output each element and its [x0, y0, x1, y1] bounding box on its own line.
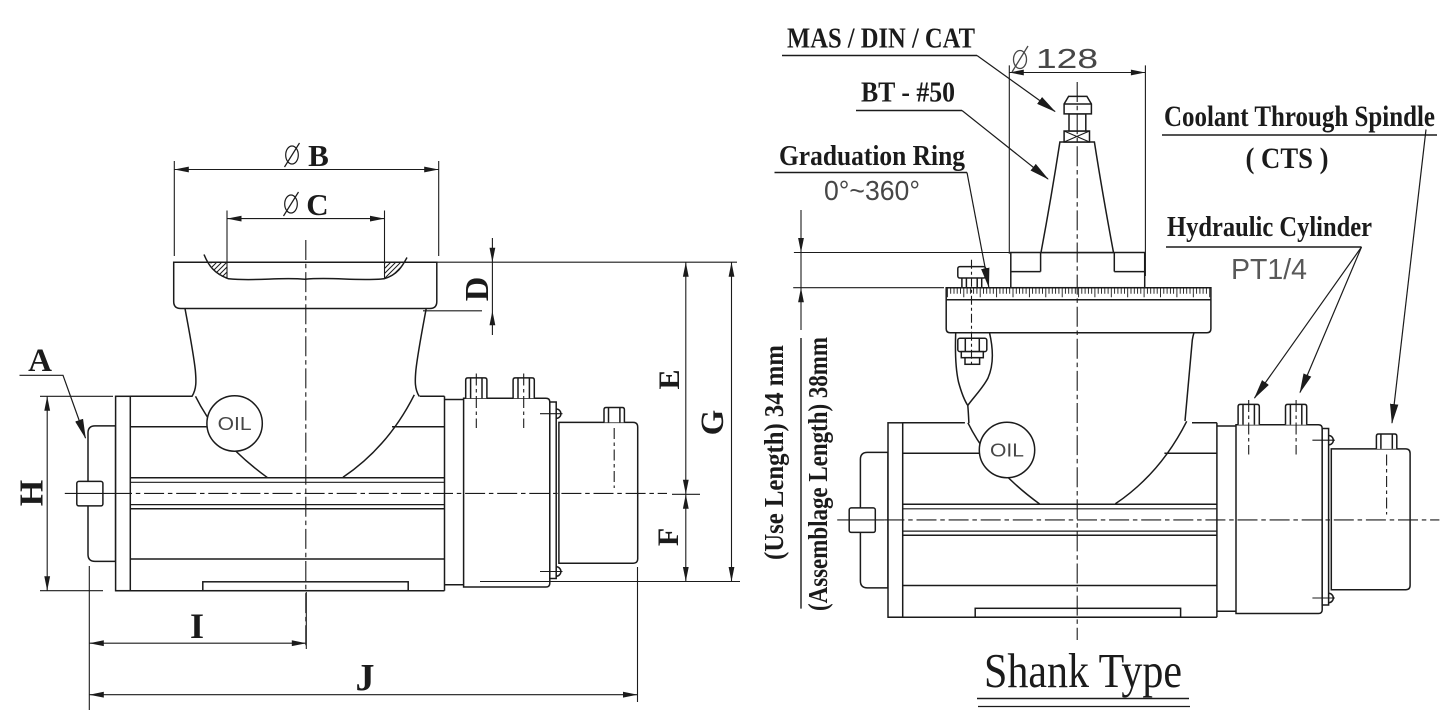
svg-text:Coolant Through Spindle: Coolant Through Spindle	[1164, 100, 1435, 133]
svg-text:OIL: OIL	[218, 413, 252, 434]
svg-text:H: H	[14, 480, 51, 506]
svg-text:E: E	[653, 369, 686, 389]
svg-text:A: A	[28, 343, 52, 379]
svg-text:(Use Length) 34 mm: (Use Length) 34 mm	[759, 345, 789, 560]
svg-text:MAS / DIN / CAT: MAS / DIN / CAT	[787, 24, 975, 55]
svg-text:PT1/4: PT1/4	[1231, 254, 1307, 286]
svg-text:J: J	[356, 657, 375, 699]
svg-text:C: C	[306, 187, 328, 222]
svg-text:Hydraulic Cylinder: Hydraulic Cylinder	[1167, 211, 1372, 243]
svg-text:I: I	[190, 606, 204, 646]
svg-text:OIL: OIL	[990, 439, 1024, 460]
svg-text:Graduation Ring: Graduation Ring	[779, 141, 965, 172]
svg-text:(Assemblage Length) 38mm: (Assemblage Length) 38mm	[803, 337, 833, 611]
svg-text:B: B	[308, 138, 329, 173]
svg-text:F: F	[652, 528, 685, 546]
svg-text:Shank Type: Shank Type	[984, 643, 1182, 698]
svg-text:( CTS ): ( CTS )	[1246, 142, 1329, 175]
svg-text:128: 128	[1036, 43, 1098, 74]
svg-text:BT - #50: BT - #50	[861, 77, 955, 109]
svg-text:D: D	[459, 277, 496, 302]
svg-text:0°~360°: 0°~360°	[824, 175, 920, 206]
svg-text:G: G	[695, 410, 731, 436]
